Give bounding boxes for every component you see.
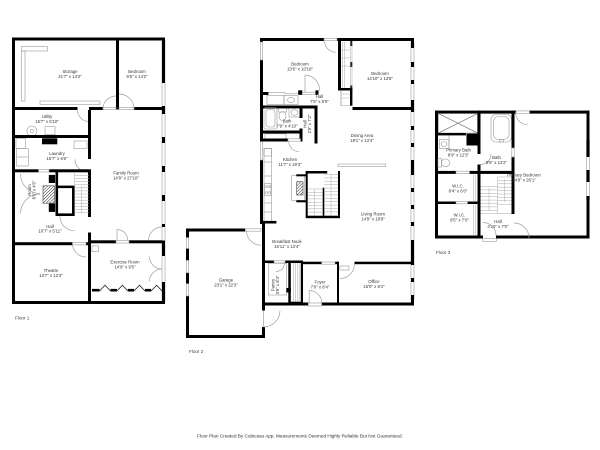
svg-text:8'4" x 6'0": 8'4" x 6'0" (449, 188, 468, 193)
svg-text:14'9" x 18'8": 14'9" x 18'8" (361, 216, 385, 221)
svg-text:14'9" x 27'10": 14'9" x 27'10" (113, 175, 139, 180)
svg-text:Floor 2: Floor 2 (189, 349, 204, 354)
svg-text:8'5" x 7'0": 8'5" x 7'0" (450, 217, 469, 222)
svg-text:14'9" x 9'5": 14'9" x 9'5" (114, 264, 136, 269)
svg-text:13'7" x 12'3": 13'7" x 12'3" (39, 273, 63, 278)
svg-text:23'1" x 22'3": 23'1" x 22'3" (214, 282, 238, 287)
svg-text:8'5" x 4'5": 8'5" x 4'5" (32, 180, 37, 199)
svg-text:Floor 3: Floor 3 (436, 250, 451, 255)
svg-text:15'7" x 6'6": 15'7" x 6'6" (46, 156, 68, 161)
svg-text:2'9" x 7'2": 2'9" x 7'2" (307, 114, 312, 133)
svg-text:Floor 1: Floor 1 (15, 316, 30, 321)
svg-text:3'5" x 8'4": 3'5" x 8'4" (275, 275, 280, 294)
svg-text:9'5" x 14'2": 9'5" x 14'2" (126, 74, 148, 79)
svg-text:10'7" x 5'11": 10'7" x 5'11" (38, 229, 62, 234)
svg-text:7'0" x 8'4": 7'0" x 8'4" (311, 284, 330, 289)
svg-text:15'0" x 8'4": 15'0" x 8'4" (363, 284, 385, 289)
svg-text:14'9" x 26'1": 14'9" x 26'1" (512, 177, 536, 182)
svg-text:7'9" x 4'10": 7'9" x 4'10" (276, 123, 298, 128)
svg-text:8'9" x 12'3": 8'9" x 12'3" (448, 152, 470, 157)
svg-text:6'6" x 12'2": 6'6" x 12'2" (486, 160, 508, 165)
svg-text:11'7" x 19'3": 11'7" x 19'3" (278, 162, 302, 167)
svg-text:21'7" x 14'2": 21'7" x 14'2" (58, 74, 82, 79)
svg-text:Floor Plan Created By Cubicasa: Floor Plan Created By Cubicasa App. Meas… (197, 434, 403, 439)
svg-text:15'11" x 13'4": 15'11" x 13'4" (274, 244, 300, 249)
svg-text:7'5" x 5'5": 7'5" x 5'5" (310, 99, 329, 104)
svg-text:19'1" x 13'4": 19'1" x 13'4" (350, 138, 374, 143)
svg-text:15'7" x 5'10": 15'7" x 5'10" (35, 119, 59, 124)
svg-text:14'10" x 13'8": 14'10" x 13'8" (367, 76, 393, 81)
svg-text:13'6" x 10'10": 13'6" x 10'10" (287, 66, 313, 71)
